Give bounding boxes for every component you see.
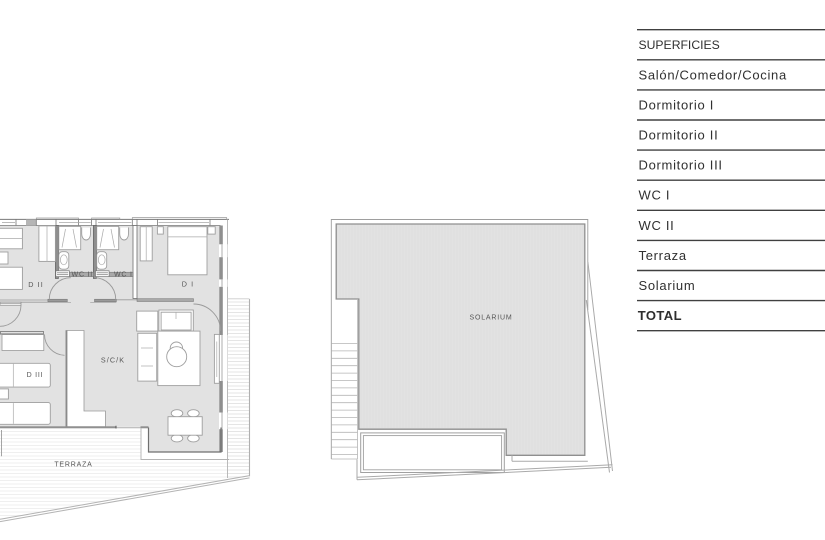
svg-text:SUPERFICIES: SUPERFICIES <box>639 38 720 52</box>
svg-text:WC II: WC II <box>639 218 675 233</box>
svg-text:Dormitorio III: Dormitorio III <box>639 158 723 173</box>
svg-text:S/C/K: S/C/K <box>101 356 125 365</box>
svg-text:Salón/Comedor/Cocina: Salón/Comedor/Cocina <box>639 67 787 82</box>
svg-text:D I: D I <box>182 280 195 289</box>
svg-text:Dormitorio II: Dormitorio II <box>639 128 719 143</box>
svg-text:Dormitorio I: Dormitorio I <box>639 97 715 112</box>
svg-text:Solarium: Solarium <box>639 278 696 293</box>
svg-text:SOLARIUM: SOLARIUM <box>470 315 513 322</box>
svg-text:WC I: WC I <box>114 271 133 278</box>
svg-text:Terraza: Terraza <box>639 248 687 263</box>
svg-text:D II: D II <box>28 280 44 289</box>
svg-text:TERRAZA: TERRAZA <box>54 462 92 469</box>
svg-text:WC II: WC II <box>72 271 94 278</box>
svg-text:D III: D III <box>27 372 44 379</box>
svg-text:WC I: WC I <box>639 188 671 203</box>
svg-text:TOTAL: TOTAL <box>638 308 682 323</box>
